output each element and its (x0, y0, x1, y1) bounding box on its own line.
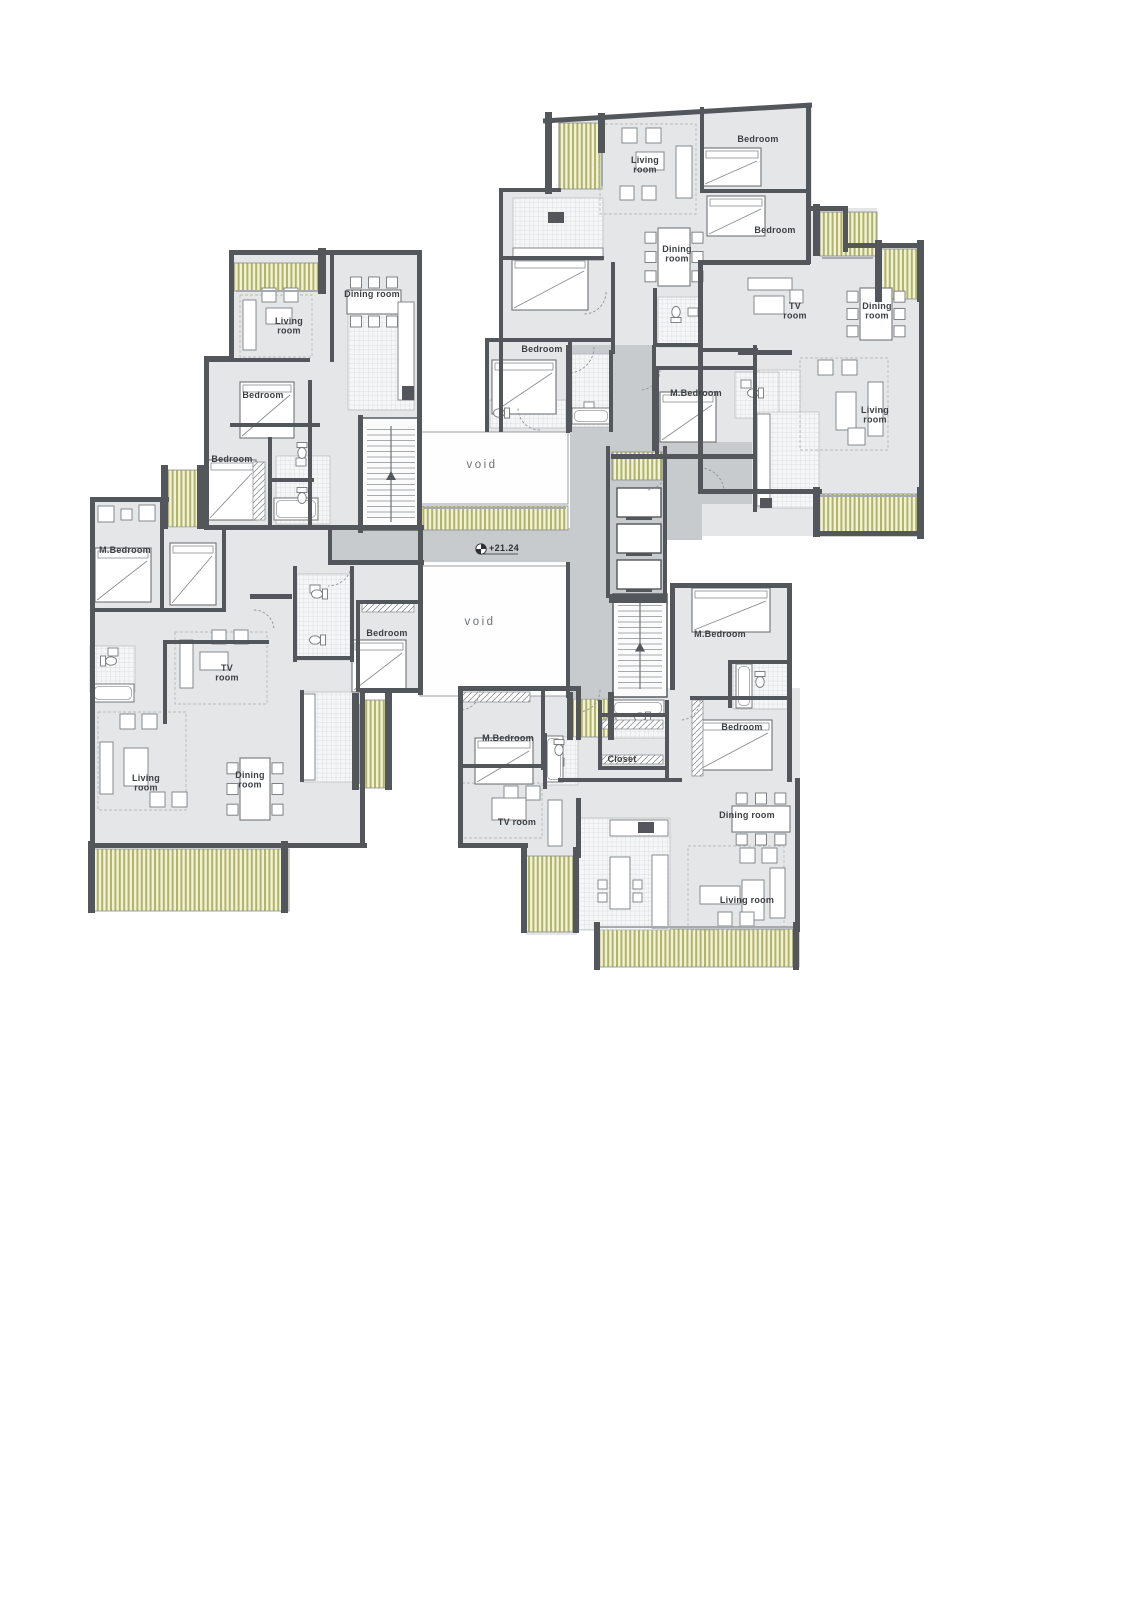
room-label-bedroom-topleft-2: Bedroom (211, 454, 252, 464)
room-label-m-bedroom-left: M.Bedroom (99, 545, 151, 555)
floor-plan-drawing: +21.24 LivingroomBedroomBedroomDiningroo… (0, 0, 1121, 1600)
room-label-dining-room-bottom: Dining room (719, 810, 775, 820)
room-label-bedroom-top-1: Bedroom (737, 134, 778, 144)
room-label-living-room-bottom: Living room (720, 895, 774, 905)
room-label-dining-room-right: Diningroom (862, 301, 892, 321)
room-label-tv-room-bottom: TV room (498, 817, 536, 827)
room-label-bedroom-top-3: Bedroom (521, 344, 562, 354)
room-label-living-room-right: Livingroom (861, 405, 889, 425)
void-layer (420, 432, 568, 696)
level-marker: +21.24 (476, 543, 519, 554)
elevators-layer (617, 488, 661, 592)
room-label-bedroom-topleft-1: Bedroom (242, 390, 283, 400)
room-label-bedroom-bottomright: Bedroom (721, 722, 762, 732)
room-label-bedroom-left: Bedroom (366, 628, 407, 638)
room-label-dining-room-left: Diningroom (235, 770, 265, 790)
floor-plan-page: +21.24 LivingroomBedroomBedroomDiningroo… (0, 0, 1121, 1600)
void-label: void (466, 459, 497, 471)
room-label-bedroom-top-2: Bedroom (754, 225, 795, 235)
room-label-dining-room-top: Diningroom (662, 244, 692, 264)
room-label-m-bedroom-bottom: M.Bedroom (482, 733, 534, 743)
room-label-living-room-left: Livingroom (132, 773, 160, 793)
room-label-dining-room-topleft: Dining room (344, 289, 400, 299)
room-label-closet-bottom: Closet (607, 754, 636, 764)
room-label-living-room-top: Livingroom (631, 155, 659, 175)
room-label-living-room-topleft: Livingroom (275, 316, 303, 336)
room-label-m-bedroom-top: M.Bedroom (670, 388, 722, 398)
room-label-m-bedroom-bottomright: M.Bedroom (694, 629, 746, 639)
void-label: void (464, 616, 495, 628)
level-marker-text: +21.24 (489, 543, 519, 553)
